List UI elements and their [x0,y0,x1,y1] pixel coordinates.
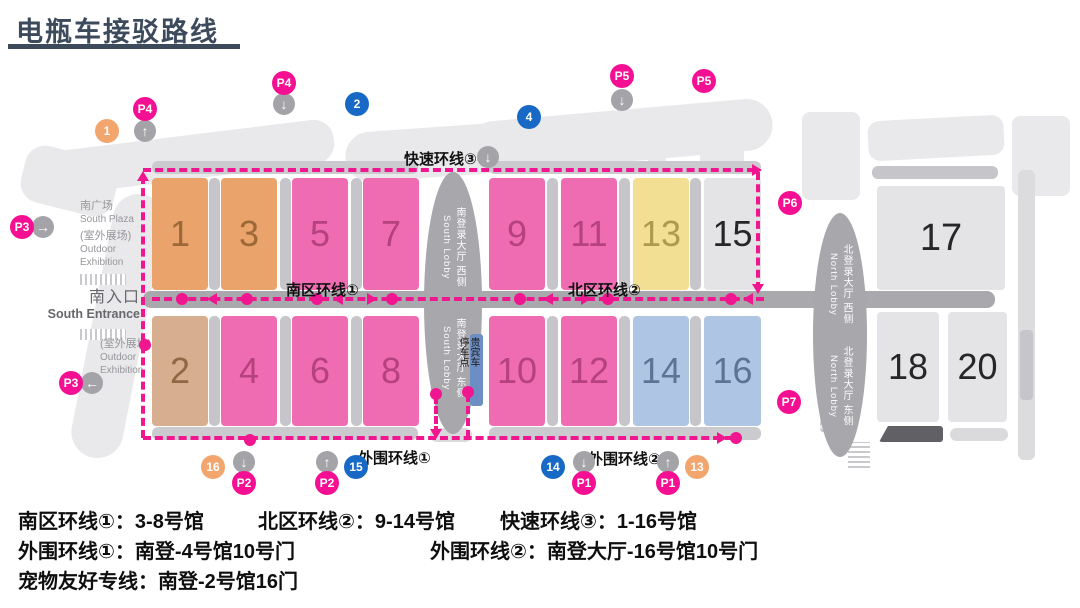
vip-stop-label: 贵宾车停车点 [457,337,479,375]
badge-label: P3 [64,376,79,390]
route-stop-dot [430,388,442,400]
legend-north-loop: 北区环线②：9-14号馆 [258,505,455,534]
badge-label: P2 [320,476,335,490]
badge-gate-2: 2 [345,92,369,116]
route-arrowhead [752,284,764,294]
hall-separator [209,178,220,290]
south-entrance-en: South Entrance [30,307,140,321]
route-arrowhead [367,293,377,305]
badge-p1: P1 [656,471,680,495]
north-lobby: North Lobby 北登录大厅 西侧 North Lobby 北登录大厅 东… [813,213,867,457]
hall-separator [690,316,701,426]
route-label-outer2: 外围环线② [588,448,661,469]
route-lobby-south-2 [466,394,470,438]
legend-line-2: 外围环线①：南登-4号馆10号门 外围环线②：南登大厅-16号馆10号门 [18,535,295,564]
arrow-down-icon: ↓ [477,146,499,168]
outdoor-en2: Exhibition [80,256,134,269]
hall-number: 11 [570,213,607,255]
badge-label: P6 [783,196,798,210]
arrow-up-icon: ↑ [657,451,679,473]
legend-south-loop: 南区环线①：3-8号馆 [18,511,204,533]
badge-label: P4 [277,76,292,90]
hall-number: 1 [170,213,190,255]
badge-label: P2 [237,476,252,490]
badge-p5: P5 [610,64,634,88]
arrow-glyph: ↓ [281,96,288,112]
badge-p6: P6 [778,191,802,215]
hall-number: 16 [712,350,752,392]
arrow-glyph: ↓ [241,454,248,470]
hall-number: 12 [569,350,609,392]
badge-gate-15: 15 [344,455,368,479]
north-lobby-en: North Lobby [828,253,839,316]
arrow-up-icon: ↑ [316,451,338,473]
arrow-glyph: ← [85,375,99,391]
south-lobby-en: South Lobby [441,326,452,390]
hall-separator [619,178,630,290]
badge-gate-1: 1 [95,119,119,143]
badge-gate-13: 13 [685,455,709,479]
hall-number: 6 [310,350,330,392]
title-underline [8,44,240,49]
legend-pet-line: 宠物友好专线：南登-2号馆16门 [18,571,298,593]
hall-12: 12 [561,316,617,426]
badge-gate-14: 14 [541,455,565,479]
arrow-left-icon: ← [81,372,103,394]
hall-number: 2 [170,350,190,392]
hall-number: 15 [712,213,752,255]
badge-label: P7 [782,395,797,409]
badge-p7: P7 [777,390,801,414]
hall-number: 10 [497,350,537,392]
hall-4: 4 [221,316,277,426]
arrow-right-icon: → [32,216,54,238]
hall-18: 18 [877,312,939,422]
building-shape [1018,170,1035,460]
route-arrowhead [743,293,753,305]
north-lobby-east-cn: 北登录大厅 东侧 [841,346,852,427]
route-arrowhead [752,164,762,176]
legend-line-1: 南区环线①：3-8号馆 北区环线②：9-14号馆 快速环线③：1-16号馆 [18,505,204,534]
hall-13: 13 [633,178,689,290]
hall-separator [547,178,558,290]
arrow-down-icon: ↓ [273,93,295,115]
hall-2: 2 [152,316,208,426]
hall-number: 18 [888,346,928,388]
route-arrowhead [430,429,442,439]
route-label-north: 北区环线② [568,279,641,300]
hall-separator [547,316,558,426]
hall-separator [351,316,362,426]
badge-gate-4: 4 [517,105,541,129]
arrow-glyph: ↓ [485,149,492,165]
badge-label: 15 [349,460,362,474]
badge-label: 2 [354,97,361,111]
north-lobby-east-label: North Lobby 北登录大厅 东侧 [828,346,852,427]
south-plaza-text: 南广场 South Plaza (室外展场) Outdoor Exhibitio… [80,200,134,269]
arrow-down-icon: ↓ [611,89,633,111]
hall-separator [280,316,291,426]
arrow-glyph: ↑ [665,454,672,470]
hall-number: 8 [381,350,401,392]
route-arrowhead [207,293,217,305]
hall-separator [690,178,701,290]
badge-label: 4 [526,110,533,124]
hall-separator [619,316,630,426]
hall-15: 15 [704,178,761,290]
badge-p3: P3 [10,215,34,239]
hall-5: 5 [292,178,348,290]
hall-6: 6 [292,316,348,426]
legend-outer-loop-2: 外围环线②：南登大厅-16号馆10号门 [430,535,758,564]
badge-label: P5 [697,74,712,88]
badge-label: 1 [104,124,111,138]
hall-8: 8 [363,316,419,426]
hall-10: 10 [489,316,545,426]
arrow-glyph: ↓ [619,92,626,108]
arrow-glyph: ↑ [324,454,331,470]
badge-gate-16: 16 [201,455,225,479]
hall-9: 9 [489,178,545,290]
badge-label: P4 [138,102,153,116]
badge-p1: P1 [572,471,596,495]
arrow-glyph: ↓ [581,454,588,470]
route-stop-dot [730,432,742,444]
route-stop-dot [462,386,474,398]
arrow-down-icon: ↓ [573,451,595,473]
route-fast-right [756,172,760,290]
route-arrowhead [137,171,149,181]
outdoor-cn: (室外展场) [80,230,134,243]
arrow-glyph: → [36,219,50,235]
badge-p3: P3 [59,371,83,395]
building-shape [1020,330,1033,400]
building-shape [950,428,1008,441]
hall-number: 3 [239,213,259,255]
badge-label: P1 [661,476,676,490]
route-label-fast: 快速环线③ [404,148,477,169]
hall-number: 13 [641,213,681,255]
route-stop-dot [725,293,737,305]
hall-number: 5 [310,213,330,255]
legend-fast-loop: 快速环线③：1-16号馆 [500,505,697,534]
badge-label: P1 [577,476,592,490]
hall-separator [280,178,291,290]
badge-label: 16 [206,460,219,474]
hall-separator [209,316,220,426]
building-shape [872,166,998,179]
badge-label: 13 [690,460,703,474]
route-stop-dot [139,339,151,351]
route-stop-dot [241,293,253,305]
hall-number: 4 [239,350,259,392]
route-outer-left [141,176,145,438]
route-stop-dot [244,434,256,446]
building-shape [879,426,943,442]
legend-outer-loop-1: 外围环线①：南登-4号馆10号门 [18,541,295,563]
route-label-south: 南区环线① [286,279,359,300]
badge-p4: P4 [272,71,296,95]
badge-p4: P4 [133,97,157,121]
hall-number: 17 [920,217,962,260]
hall-3: 3 [221,178,277,290]
building-shape [802,112,860,200]
hall-11: 11 [561,178,617,290]
route-arrowhead [543,293,553,305]
hall-number: 20 [957,346,997,388]
route-stop-dot [176,293,188,305]
south-plaza-cn: 南广场 [80,200,134,213]
arrow-glyph: ↑ [142,123,149,139]
building-shape [867,114,1005,161]
south-lobby-west-label: South Lobby 南登录大厅 西侧 [441,207,465,288]
building-shape [848,442,870,468]
badge-p2: P2 [315,471,339,495]
shuttle-route-map: 电瓶车接驳路线 1 3 5 7 9 11 13 15 2 4 6 [0,0,1080,608]
north-lobby-en: North Lobby [828,355,839,418]
badge-label: P3 [15,220,30,234]
arrow-down-icon: ↓ [233,451,255,473]
badge-p5: P5 [692,69,716,93]
hall-20: 20 [948,312,1007,422]
hall-17: 17 [877,186,1005,290]
route-arrowhead [717,432,727,444]
route-stop-dot [514,293,526,305]
north-lobby-west-label: North Lobby 北登录大厅 西侧 [828,244,852,325]
arrow-up-icon: ↑ [134,120,156,142]
hall-number: 14 [641,350,681,392]
south-entrance-text: 南入口 South Entrance [30,283,140,321]
badge-p2: P2 [232,471,256,495]
legend-line-3: 宠物友好专线：南登-2号馆16门 [18,565,298,594]
outdoor-en1: Outdoor [80,243,134,256]
route-label-outer1: 外围环线① [358,447,431,468]
hall-7: 7 [363,178,419,290]
route-stop-dot [386,293,398,305]
south-entrance-cn: 南入口 [30,283,140,307]
hall-16: 16 [704,316,761,426]
south-plaza-en: South Plaza [80,213,134,226]
badge-label: 14 [546,460,559,474]
hall-separator [351,178,362,290]
north-lobby-west-cn: 北登录大厅 西侧 [841,244,852,325]
badge-label: P5 [615,69,630,83]
hall-number: 9 [507,213,527,255]
hall-number: 7 [381,213,401,255]
hall-1: 1 [152,178,208,290]
south-lobby-en: South Lobby [441,215,452,279]
hall-14: 14 [633,316,689,426]
south-lobby-west-cn: 南登录大厅 西侧 [454,207,465,288]
